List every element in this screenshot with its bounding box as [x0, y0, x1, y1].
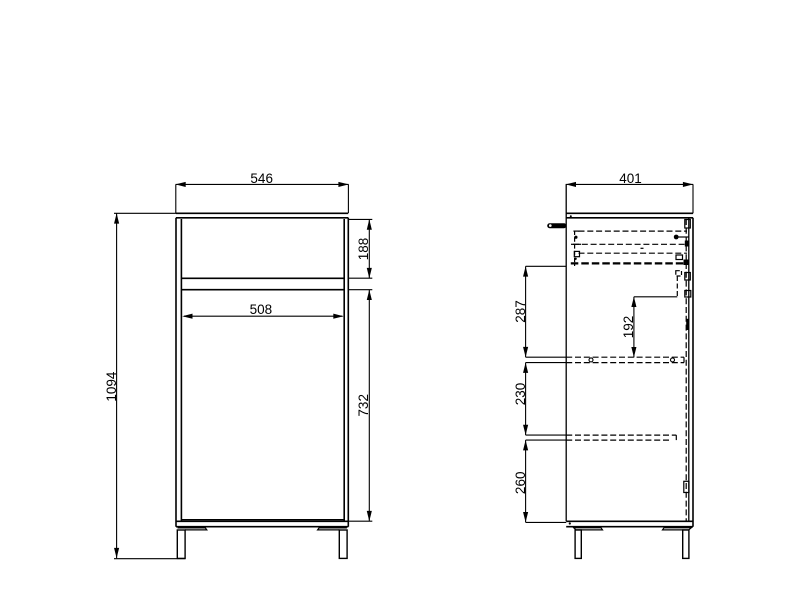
svg-text:287: 287	[513, 300, 528, 323]
svg-text:1094: 1094	[104, 371, 119, 402]
svg-text:732: 732	[356, 394, 371, 417]
svg-text:192: 192	[621, 316, 636, 339]
svg-text:508: 508	[250, 302, 273, 317]
svg-text:260: 260	[513, 472, 528, 495]
svg-text:401: 401	[619, 171, 642, 186]
svg-text:230: 230	[513, 383, 528, 406]
svg-text:546: 546	[250, 171, 273, 186]
svg-text:188: 188	[356, 238, 371, 261]
